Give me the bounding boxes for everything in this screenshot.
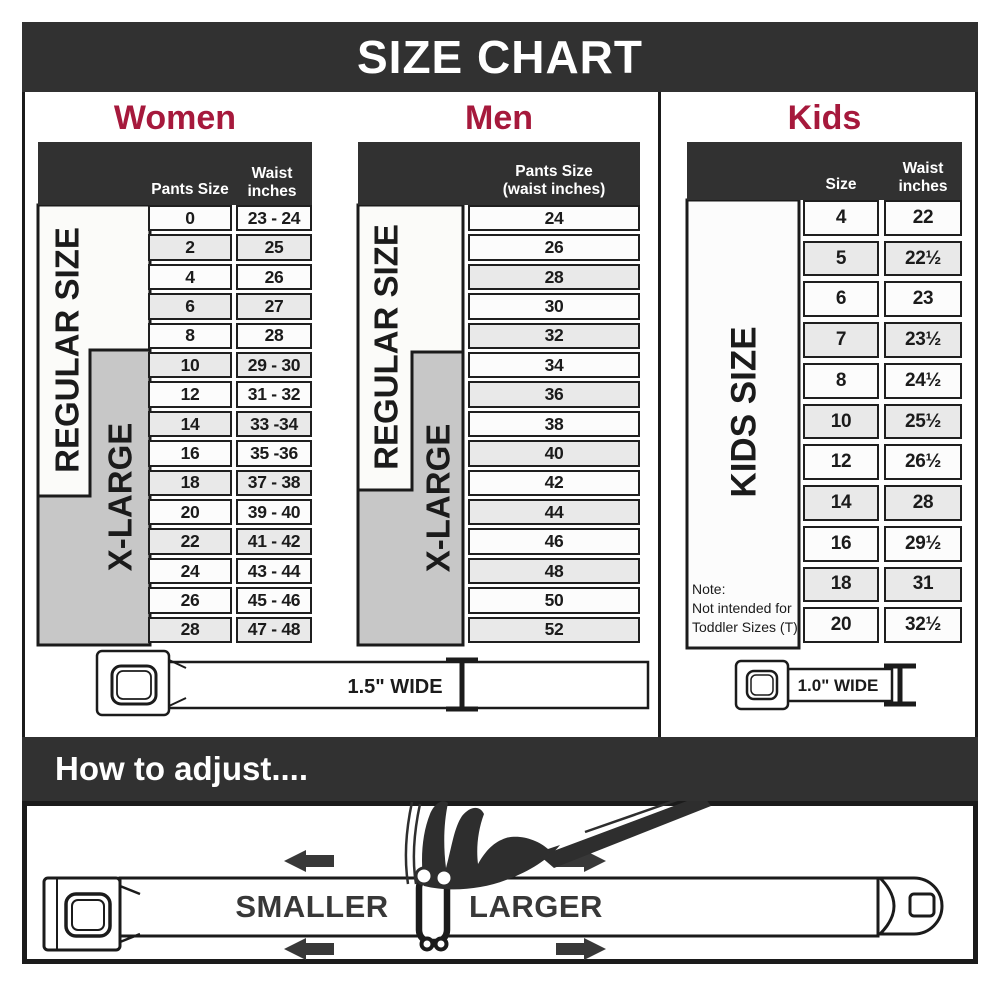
size-cell: 38 [468, 411, 640, 437]
table-row: 623 [803, 281, 962, 322]
table-row: 1231 - 32 [148, 381, 312, 410]
men-col-pants-size: Pants Size (waist inches) [468, 163, 640, 199]
waist-cell: 28 [236, 323, 312, 349]
waist-cell: 32½ [884, 607, 962, 643]
waist-cell: 29 - 30 [236, 352, 312, 378]
waist-cell: 25½ [884, 404, 962, 440]
table-row: 828 [148, 323, 312, 352]
waist-cell: 37 - 38 [236, 470, 312, 496]
waist-cell: 43 - 44 [236, 558, 312, 584]
waist-cell: 23 [884, 281, 962, 317]
waist-cell: 45 - 46 [236, 587, 312, 613]
waist-cell: 22 [884, 200, 962, 236]
size-cell: 4 [803, 200, 879, 236]
size-cell: 14 [803, 485, 879, 521]
kids-section-title: Kids [687, 96, 962, 140]
size-cell: 18 [148, 470, 232, 496]
waist-cell: 26½ [884, 444, 962, 480]
table-row: 2847 - 48 [148, 617, 312, 646]
size-cell: 52 [468, 617, 640, 643]
size-cell: 44 [468, 499, 640, 525]
size-cell: 50 [468, 587, 640, 613]
women-size-table: 023 - 242254266278281029 - 301231 - 3214… [148, 205, 312, 646]
table-row: 1428 [803, 485, 962, 526]
table-row: 30 [468, 293, 640, 322]
table-row: 40 [468, 440, 640, 469]
table-row: 52 [468, 617, 640, 646]
size-chart-page: SIZE CHART Women Men Kids Pants Size Wai… [0, 0, 1000, 1000]
size-cell: 18 [803, 567, 879, 603]
table-row: 2645 - 46 [148, 587, 312, 616]
size-cell: 7 [803, 322, 879, 358]
waist-cell: 47 - 48 [236, 617, 312, 643]
waist-cell: 41 - 42 [236, 528, 312, 554]
waist-cell: 23 - 24 [236, 205, 312, 231]
kids-col-size: Size [803, 176, 879, 194]
size-cell: 28 [468, 264, 640, 290]
size-cell: 2 [148, 234, 232, 260]
table-row: 023 - 24 [148, 205, 312, 234]
size-cell: 24 [148, 558, 232, 584]
adjust-illustration-box [22, 801, 978, 964]
table-row: 32 [468, 323, 640, 352]
table-row: 46 [468, 528, 640, 557]
women-table-header: Pants Size Waist inches [38, 142, 312, 205]
size-cell: 46 [468, 528, 640, 554]
men-section-title: Men [358, 96, 640, 140]
size-cell: 34 [468, 352, 640, 378]
table-row: 38 [468, 411, 640, 440]
table-row: 1025½ [803, 404, 962, 445]
size-cell: 48 [468, 558, 640, 584]
size-cell: 0 [148, 205, 232, 231]
kids-table-header: Size Waist inches [687, 142, 962, 200]
size-cell: 4 [148, 264, 232, 290]
table-row: 1029 - 30 [148, 352, 312, 381]
waist-cell: 28 [884, 485, 962, 521]
title-banner: SIZE CHART [22, 22, 978, 92]
size-cell: 6 [803, 281, 879, 317]
waist-cell: 24½ [884, 363, 962, 399]
size-cell: 20 [803, 607, 879, 643]
size-cell: 5 [803, 241, 879, 277]
table-row: 723½ [803, 322, 962, 363]
size-cell: 8 [803, 363, 879, 399]
size-cell: 40 [468, 440, 640, 466]
size-cell: 16 [803, 526, 879, 562]
women-col-waist: Waist inches [234, 165, 310, 201]
size-cell: 24 [468, 205, 640, 231]
size-cell: 10 [148, 352, 232, 378]
table-row: 1831 [803, 567, 962, 608]
table-row: 28 [468, 264, 640, 293]
kids-note: Note: Not intended for Toddler Sizes (T) [692, 580, 800, 637]
size-cell: 12 [803, 444, 879, 480]
size-cell: 30 [468, 293, 640, 319]
size-cell: 20 [148, 499, 232, 525]
table-row: 2241 - 42 [148, 528, 312, 557]
table-row: 2039 - 40 [148, 499, 312, 528]
size-cell: 22 [148, 528, 232, 554]
men-table-header: Pants Size (waist inches) [358, 142, 640, 205]
table-row: 1837 - 38 [148, 470, 312, 499]
table-row: 2032½ [803, 607, 962, 648]
waist-cell: 33 -34 [236, 411, 312, 437]
page-title: SIZE CHART [357, 30, 643, 84]
size-cell: 36 [468, 381, 640, 407]
table-row: 422 [803, 200, 962, 241]
kids-size-table: 422522½623723½824½1025½1226½14281629½183… [803, 200, 962, 648]
size-cell: 26 [468, 234, 640, 260]
how-to-adjust-band: How to adjust.... [22, 737, 978, 801]
waist-cell: 25 [236, 234, 312, 260]
size-cell: 32 [468, 323, 640, 349]
table-row: 426 [148, 264, 312, 293]
size-cell: 28 [148, 617, 232, 643]
table-row: 26 [468, 234, 640, 263]
waist-cell: 22½ [884, 241, 962, 277]
waist-cell: 29½ [884, 526, 962, 562]
waist-cell: 31 [884, 567, 962, 603]
table-row: 24 [468, 205, 640, 234]
how-to-adjust-title: How to adjust.... [55, 750, 308, 788]
table-row: 1433 -34 [148, 411, 312, 440]
table-row: 50 [468, 587, 640, 616]
size-cell: 10 [803, 404, 879, 440]
table-row: 48 [468, 558, 640, 587]
table-row: 44 [468, 499, 640, 528]
waist-cell: 23½ [884, 322, 962, 358]
table-row: 1226½ [803, 444, 962, 485]
table-row: 627 [148, 293, 312, 322]
panel-divider [658, 92, 661, 737]
kids-col-waist: Waist inches [884, 160, 962, 196]
size-cell: 8 [148, 323, 232, 349]
size-cell: 6 [148, 293, 232, 319]
women-section-title: Women [38, 96, 312, 140]
men-size-table: 242628303234363840424446485052 [468, 205, 640, 646]
table-row: 42 [468, 470, 640, 499]
size-cell: 16 [148, 440, 232, 466]
table-row: 36 [468, 381, 640, 410]
size-cell: 14 [148, 411, 232, 437]
waist-cell: 27 [236, 293, 312, 319]
waist-cell: 39 - 40 [236, 499, 312, 525]
waist-cell: 31 - 32 [236, 381, 312, 407]
table-row: 824½ [803, 363, 962, 404]
table-row: 2443 - 44 [148, 558, 312, 587]
size-cell: 26 [148, 587, 232, 613]
table-row: 225 [148, 234, 312, 263]
table-row: 1635 -36 [148, 440, 312, 469]
size-cell: 42 [468, 470, 640, 496]
waist-cell: 26 [236, 264, 312, 290]
women-col-pants-size: Pants Size [148, 181, 232, 199]
table-row: 1629½ [803, 526, 962, 567]
size-cell: 12 [148, 381, 232, 407]
waist-cell: 35 -36 [236, 440, 312, 466]
table-row: 34 [468, 352, 640, 381]
table-row: 522½ [803, 241, 962, 282]
